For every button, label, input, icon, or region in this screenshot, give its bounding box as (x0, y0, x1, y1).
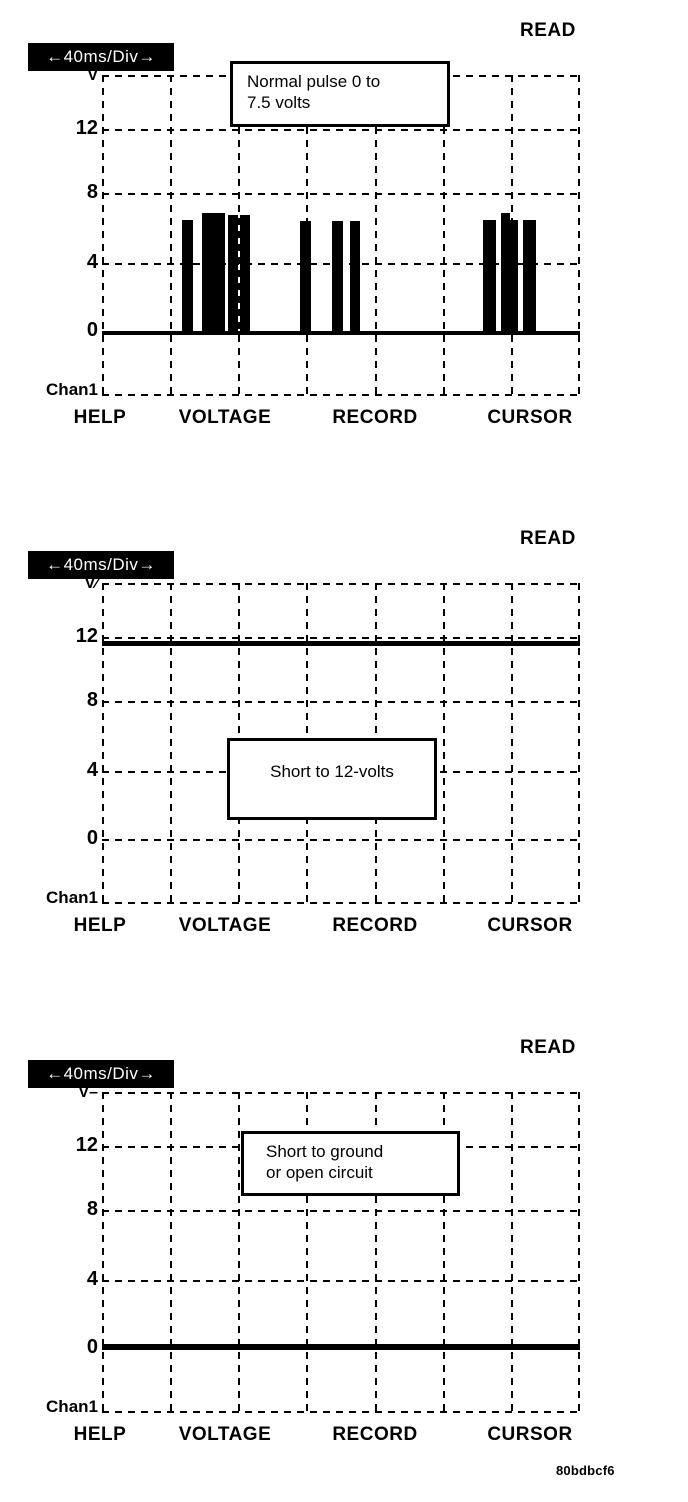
pulse-bar (300, 221, 311, 335)
callout-text-line: Short to ground (266, 1141, 451, 1162)
callout-box: Short to 12-volts (227, 738, 437, 820)
callout-text-line: 7.5 volts (247, 92, 441, 113)
callout-box: Short to groundor open circuit (241, 1131, 460, 1196)
figure-id-label: 80bdbcf6 (556, 1463, 656, 1478)
scope-panel-short-to-ground: READ ←40ms/Div→ V– 12 8 4 0 Chan1 Short … (0, 1032, 688, 1462)
pulse-bar (350, 221, 360, 335)
trace-flat-line (102, 1344, 580, 1350)
pulse-bar (228, 215, 238, 335)
callout-text-line: or open circuit (266, 1162, 451, 1183)
callout-box: Normal pulse 0 to7.5 volts (230, 61, 450, 127)
callout-text-line: Short to 12-volts (230, 761, 434, 782)
pulse-bar (501, 220, 518, 335)
trace-flat-line (102, 641, 580, 646)
page-root: READ ←40ms/Div→ V 12 8 4 0 Chan1 Normal … (0, 0, 688, 1502)
trace-layer (0, 1032, 688, 1462)
pulse-bar (483, 220, 496, 335)
callout-text-line: Normal pulse 0 to (247, 71, 441, 92)
scope-panel-normal-pulse: READ ←40ms/Div→ V 12 8 4 0 Chan1 Normal … (0, 15, 688, 445)
scope-panel-short-to-12v: READ ←40ms/Div→ V∕ 12 8 4 0 Chan1 Short … (0, 523, 688, 953)
pulse-bar (202, 213, 225, 335)
pulse-bar (523, 220, 536, 335)
pulse-bar (182, 220, 193, 335)
pulse-bar (332, 221, 343, 335)
pulse-bar (240, 215, 250, 335)
